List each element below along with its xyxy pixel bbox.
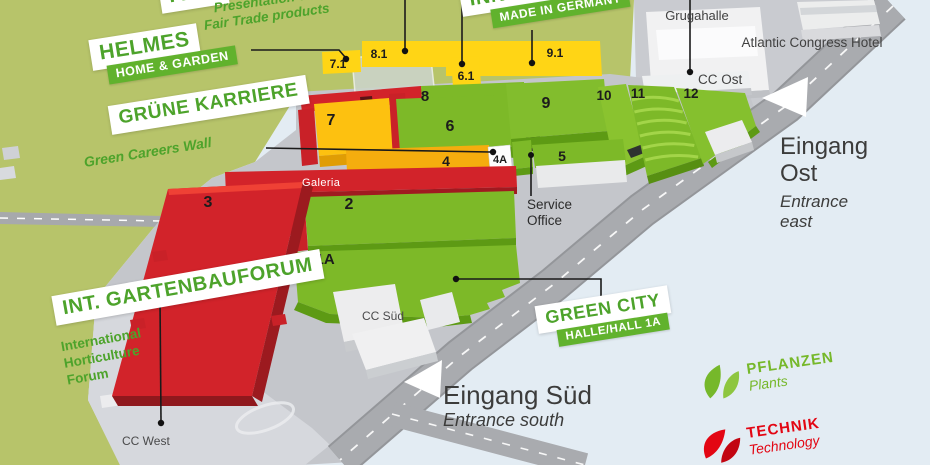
small-building [2, 146, 20, 160]
hall-label-2: 2 [345, 196, 354, 213]
connector-dot [528, 152, 534, 158]
galeria-label: Galeria [302, 177, 341, 189]
entrance-east-label: Eingang Ost Entrance east [780, 133, 868, 232]
service-office-label-line1: Service [527, 197, 572, 212]
entrance-south-translation: Entrance south [443, 410, 592, 430]
entrance-east-translation-line2: east [780, 212, 868, 232]
hall-label-4: 4 [442, 153, 450, 169]
connector-dot [529, 60, 535, 66]
entrance-east-name-line2: Ost [780, 160, 868, 187]
entrance-east-translation-line1: Entrance [780, 192, 868, 212]
hall-label-7: 7 [327, 112, 336, 129]
hall-label-6-1: 6.1 [458, 69, 475, 83]
hall-label-6: 6 [446, 118, 455, 135]
hall-9-top [506, 79, 609, 139]
entrance-south-label: Eingang Süd Entrance south [443, 381, 592, 430]
hall-label-7-1: 7.1 [330, 57, 347, 71]
cc-ost-label: CC Ost [698, 72, 743, 87]
hall-label-5: 5 [558, 148, 566, 164]
hall-label-8: 8 [421, 88, 429, 105]
small-building [0, 166, 16, 180]
cc-sued-label: CC Süd [362, 309, 404, 323]
plants-leaf-icon [696, 360, 745, 406]
entrance-south-name: Eingang Süd [443, 381, 592, 410]
fairground-map: 7.1 8.1 6.1 9.1 8 6 9 10 11 12 7 4 4A 5 … [0, 0, 930, 465]
connector-dot [687, 69, 693, 75]
hall-label-3: 3 [204, 194, 213, 211]
hall-label-11: 11 [631, 86, 646, 101]
technology-flower-icon [696, 424, 745, 465]
hall-label-9: 9 [542, 95, 551, 112]
hall-2-top [304, 191, 516, 246]
hall-label-9-1: 9.1 [547, 46, 564, 60]
hall-label-4a: 4A [493, 154, 507, 166]
connector-dot [402, 48, 408, 54]
connector-dot [158, 420, 164, 426]
grugahalle-label: Grugahalle [665, 8, 729, 23]
entrance-east-name-line1: Eingang [780, 133, 868, 160]
hall-label-8-1: 8.1 [371, 47, 388, 61]
service-office-label-line2: Office [527, 213, 562, 228]
connector-dot [453, 276, 459, 282]
cc-west-label: CC West [122, 434, 170, 448]
hotel-label: Atlantic Congress Hotel [741, 35, 882, 50]
hall-label-10: 10 [596, 88, 611, 103]
connector-dot [459, 61, 465, 67]
hall-3-tab [271, 314, 287, 326]
hall-label-12: 12 [683, 86, 698, 101]
hall-6-top [396, 94, 527, 152]
hall-3-tab [152, 250, 168, 262]
connector-gartenbauforum [160, 300, 161, 420]
hall-3-side-bottom [112, 396, 258, 406]
